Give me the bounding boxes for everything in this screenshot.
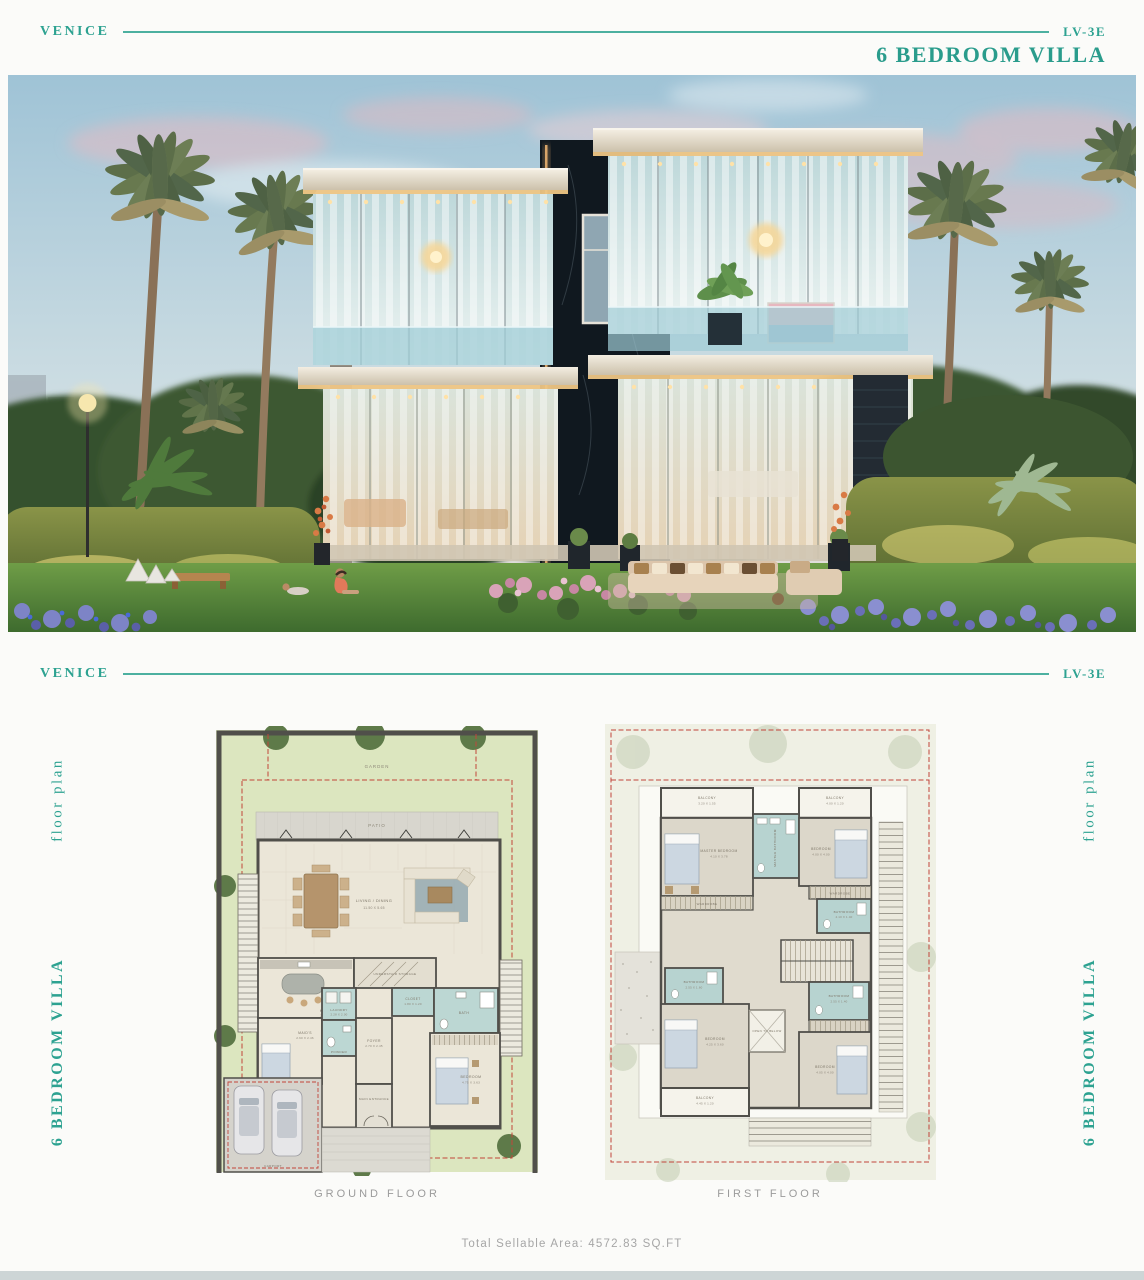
svg-text:2.60 X 2.46: 2.60 X 2.46 (296, 1036, 314, 1040)
svg-text:2.55 X 1.60: 2.55 X 1.60 (686, 986, 703, 990)
room-bath: BATH (434, 988, 498, 1033)
svg-text:BALCONY: BALCONY (696, 1096, 715, 1100)
lower-roof-hatch (749, 1118, 871, 1146)
svg-text:WARDROBE: WARDROBE (697, 902, 718, 906)
villa-render-scene (8, 75, 1136, 632)
svg-text:2.55 X 1.40: 2.55 X 1.40 (831, 1000, 848, 1004)
side-label-floor-plan-left: floor plan (50, 758, 67, 842)
svg-text:BEDROOM: BEDROOM (811, 847, 831, 851)
sofa-set (404, 868, 475, 923)
room-closet: CLOSET 1.80 X 1.20 (392, 988, 434, 1016)
svg-text:3.20 X 1.55: 3.20 X 1.55 (698, 802, 716, 806)
side-label-floor-plan-right: floor plan (1082, 758, 1099, 842)
room-label: LIVING / DINING (356, 898, 392, 903)
svg-text:LAUNDRY: LAUNDRY (330, 1008, 348, 1012)
room-master-bedroom: MASTER BEDROOM 4.10 X 3.78 (661, 818, 753, 896)
villa-photo (8, 75, 1136, 632)
side-roof-strip (879, 822, 903, 1112)
balcony-glass (313, 327, 553, 365)
outdoor-sofa (608, 561, 842, 609)
balcony-bottom: BALCONY 4.45 X 1.20 (661, 1088, 749, 1116)
svg-text:2.28 X 2.00: 2.28 X 2.00 (331, 1013, 348, 1017)
page-title: 6 BEDROOM VILLA (876, 42, 1106, 68)
walkway (322, 1128, 430, 1172)
svg-text:BALCONY: BALCONY (826, 796, 845, 800)
svg-text:WARDROBE: WARDROBE (830, 892, 851, 896)
gravel-terrace (615, 952, 661, 1044)
main-entrance: MAIN ENTRANCE (356, 1084, 392, 1128)
header-plans: VENICE LV-3E (40, 666, 1106, 682)
svg-text:CARPORT: CARPORT (264, 1164, 282, 1168)
first-floor-caption: FIRST FLOOR (717, 1188, 823, 1200)
svg-text:1.80 X 1.20: 1.80 X 1.20 (404, 1002, 422, 1006)
svg-text:BATH: BATH (459, 1011, 470, 1015)
interior-bed (708, 471, 798, 497)
svg-text:MAIN ENTRANCE: MAIN ENTRANCE (359, 1097, 389, 1101)
brochure-page: VENICE LV-3E 6 BEDROOM VILLA (0, 0, 1144, 1280)
svg-text:4.45 X 1.20: 4.45 X 1.20 (696, 1102, 714, 1106)
svg-text:4.05 X 4.00: 4.05 X 4.00 (816, 1071, 834, 1075)
svg-text:BALCONY: BALCONY (698, 796, 717, 800)
staircase (781, 940, 853, 982)
svg-text:BEDROOM: BEDROOM (705, 1037, 725, 1041)
balcony-top-left: BALCONY 3.20 X 1.55 (661, 788, 753, 818)
svg-text:MAID'S: MAID'S (298, 1031, 312, 1035)
open-to-below: OPEN TO BELOW (749, 1010, 785, 1052)
terrace (316, 545, 876, 561)
interior-sofa (344, 499, 406, 527)
first-floor-plan: BALCONY 3.20 X 1.55 BALCONY 4.00 X 1.20 … (603, 722, 938, 1182)
side-label-villa-right: 6 BEDROOM VILLA (1081, 958, 1099, 1146)
balcony-top-right: BALCONY 4.00 X 1.20 (799, 788, 871, 818)
patio-label: PATIO (368, 823, 386, 828)
svg-text:BEDROOM: BEDROOM (461, 1075, 482, 1079)
svg-text:MASTER BATHROOM: MASTER BATHROOM (773, 829, 777, 866)
wardrobe-strip (809, 1020, 869, 1032)
patio: PATIO (256, 812, 498, 840)
room-bathroom-right-upper: BATHROOM 4.10 X 1.40 (817, 899, 871, 933)
room-dims: 11.50 X 5.65 (363, 906, 384, 910)
svg-text:BATHROOM: BATHROOM (829, 994, 850, 998)
svg-text:OPEN TO BELOW: OPEN TO BELOW (752, 1029, 781, 1033)
svg-text:POWDER: POWDER (331, 1050, 348, 1054)
brand-name: VENICE (40, 666, 109, 682)
car (272, 1090, 302, 1156)
svg-text:2.70 X 2.45: 2.70 X 2.45 (365, 1044, 383, 1048)
header-rule (123, 31, 1049, 33)
roof-slab (303, 170, 568, 190)
room-laundry: LAUNDRY 2.28 X 2.00 (322, 988, 356, 1020)
exterior-stairs-right (500, 960, 522, 1056)
room-foyer: FOYER 2.70 X 2.45 (356, 1018, 392, 1084)
mid-slab (588, 355, 933, 375)
svg-text:4.75 X 3.63: 4.75 X 3.63 (462, 1081, 480, 1085)
total-area-text: Total Sellable Area: 4572.83 SQ.FT (0, 1238, 1144, 1250)
ground-floor-plan: GARDEN PATIO (212, 726, 542, 1176)
ground-floor-caption: GROUND FLOOR (314, 1188, 440, 1200)
room-storage: UNDERSTAIR STORAGE (354, 958, 436, 988)
svg-text:4.10 X 3.78: 4.10 X 3.78 (710, 855, 728, 859)
room-bedroom-2: BEDROOM 4.00 X 4.00 (799, 818, 871, 886)
room-bathroom-left: BATHROOM 2.55 X 1.60 (665, 968, 723, 1004)
balcony-glass (608, 307, 908, 351)
brand-name: VENICE (40, 24, 109, 40)
garden-label: GARDEN (365, 764, 390, 769)
exterior-stairs-left (238, 874, 258, 1032)
room-bedroom-4: BEDROOM 4.05 X 4.00 (799, 1032, 871, 1108)
room-master-bathroom: MASTER BATHROOM (753, 814, 799, 878)
svg-text:BEDROOM: BEDROOM (815, 1065, 835, 1069)
unit-code: LV-3E (1063, 666, 1106, 682)
svg-text:4.10 X 1.40: 4.10 X 1.40 (836, 915, 853, 919)
svg-text:FOYER: FOYER (367, 1039, 381, 1043)
room-maids: MAID'S 2.60 X 2.46 (258, 1018, 322, 1084)
wardrobe-left: WARDROBE (661, 896, 753, 910)
room-bathroom-right-lower: BATHROOM 2.55 X 1.40 (809, 982, 869, 1020)
svg-text:BATHROOM: BATHROOM (684, 980, 705, 984)
svg-text:UNDERSTAIR STORAGE: UNDERSTAIR STORAGE (373, 972, 416, 976)
page-edge (0, 1271, 1144, 1280)
svg-text:BATHROOM: BATHROOM (834, 910, 855, 914)
mid-slab (298, 367, 578, 385)
unit-code: LV-3E (1063, 24, 1106, 40)
header-top: VENICE LV-3E (40, 24, 1106, 40)
room-bedroom-ground: BEDROOM 4.75 X 3.63 (430, 1033, 500, 1126)
svg-text:CLOSET: CLOSET (405, 997, 420, 1001)
car (234, 1086, 264, 1154)
header-rule (123, 673, 1049, 675)
side-label-villa-left: 6 BEDROOM VILLA (49, 958, 67, 1146)
carport: CARPORT (224, 1078, 322, 1172)
room-powder: POWDER (322, 1020, 356, 1056)
svg-text:4.25 X 3.60: 4.25 X 3.60 (706, 1043, 724, 1047)
room-bedroom-3: BEDROOM 4.25 X 3.60 (661, 1004, 749, 1088)
svg-text:MASTER BEDROOM: MASTER BEDROOM (700, 849, 737, 853)
roof-slab (593, 130, 923, 152)
wardrobe-right: WARDROBE (809, 886, 871, 899)
svg-text:4.00 X 1.20: 4.00 X 1.20 (826, 802, 844, 806)
svg-text:4.00 X 4.00: 4.00 X 4.00 (812, 853, 830, 857)
